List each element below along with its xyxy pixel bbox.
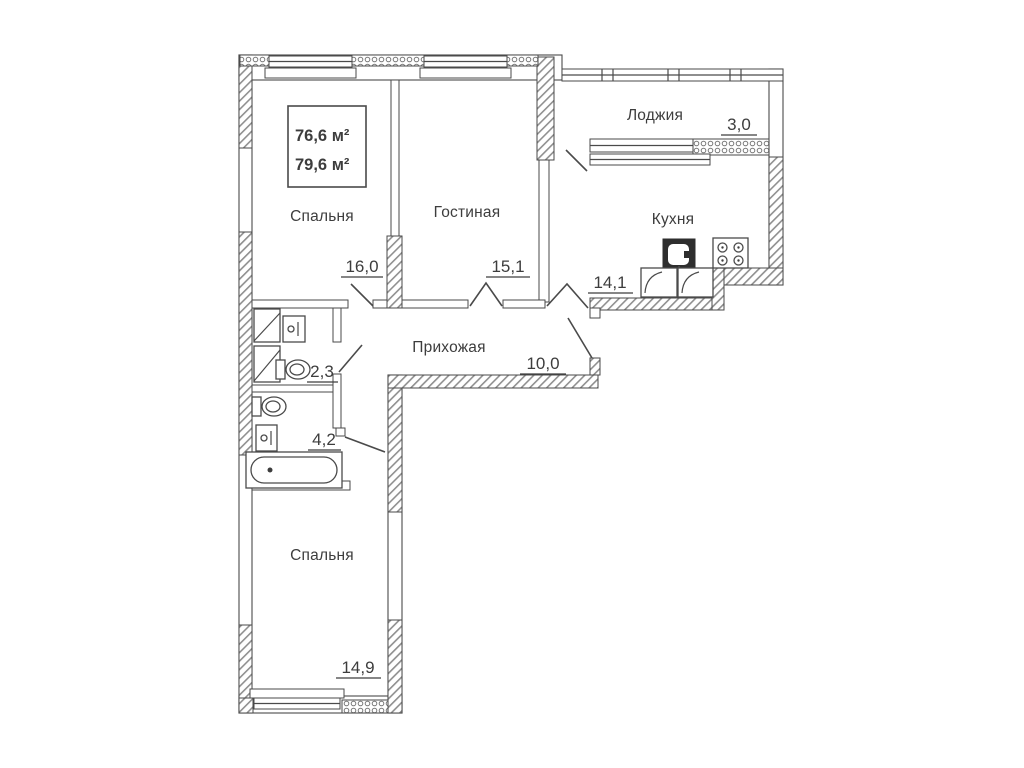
balcony-door-leaf <box>566 150 587 171</box>
floor-plan-canvas: 76,6 м² 79,6 м² Спальня 16,0 Гостиная 15… <box>0 0 1024 768</box>
room-area-kitchen: 14,1 <box>593 273 626 292</box>
wc-wall <box>333 308 341 342</box>
room-label-hallway: Прихожая <box>412 339 485 356</box>
total-area-with-loggia-value: 79,6 м² <box>295 156 350 174</box>
window-bedroom-bottom <box>250 689 388 713</box>
room-area-bedroom-bottom: 14,9 <box>341 658 374 677</box>
bath-door-hinge <box>336 428 345 436</box>
room-labels: Спальня 16,0 Гостиная 15,1 Кухня 14,1 Ло… <box>290 107 757 678</box>
room-area-bathroom: 4,2 <box>312 430 336 449</box>
block-pattern <box>342 700 388 713</box>
bathtub-icon <box>246 452 342 488</box>
wc-fixtures <box>254 309 310 382</box>
wc-door-leaf <box>339 345 362 372</box>
entrance-door-leaf <box>568 318 592 358</box>
room-area-living-room: 15,1 <box>491 257 524 276</box>
kitchen-bottom-wall <box>590 298 712 310</box>
block-pattern <box>240 55 269 66</box>
room-label-living-room: Гостиная <box>434 204 501 221</box>
entrance-wall <box>590 308 600 318</box>
bedroom-top-door-leaf <box>351 284 373 306</box>
hallway-top-wall <box>402 300 468 308</box>
living-room-door-leaf <box>470 283 502 306</box>
room-label-loggia: Лоджия <box>627 107 683 124</box>
room-area-loggia: 3,0 <box>727 115 751 134</box>
kitchen-door-leaf <box>547 284 588 308</box>
bath-door-leaf <box>345 437 385 452</box>
total-area-value: 76,6 м² <box>295 127 350 145</box>
room-area-bedroom-top: 16,0 <box>345 257 378 276</box>
wall-hatch-block <box>239 232 252 455</box>
block-pattern <box>352 55 424 66</box>
area-box: 76,6 м² 79,6 м² <box>288 106 366 187</box>
loggia-kitchen-wall <box>566 139 769 171</box>
wall-hatch-block <box>388 375 402 512</box>
kitchen-fixtures <box>641 238 748 297</box>
wc-bath-divider <box>252 385 333 392</box>
wall-hatch-block <box>239 55 252 148</box>
washbasin-icon <box>256 425 277 451</box>
vent-shaft-icon <box>254 309 280 342</box>
toilet-icon <box>276 360 310 379</box>
loggia-glazing <box>562 69 783 81</box>
block-pattern <box>507 55 538 66</box>
hallway-top-wall <box>373 300 387 308</box>
living-kitchen-wall <box>539 160 549 302</box>
window-living-room <box>420 56 511 78</box>
wall-hatch-block <box>769 157 783 285</box>
block-pattern <box>693 139 769 155</box>
bedroom-living-wall <box>391 80 399 236</box>
hallway-bottom-wall <box>388 375 598 388</box>
room-label-bedroom-bottom: Спальня <box>290 547 354 564</box>
toilet-icon <box>252 397 286 416</box>
room-label-kitchen: Кухня <box>652 211 694 228</box>
hallway-top-wall <box>252 300 348 308</box>
floor-plan-drawing: 76,6 м² 79,6 м² Спальня 16,0 Гостиная 15… <box>0 0 1024 768</box>
pier-hatch-block <box>387 236 402 308</box>
stove-icon <box>713 238 748 268</box>
hallway-top-wall <box>503 300 545 308</box>
kitchen-counter-icon <box>641 268 713 297</box>
window-bedroom-top <box>265 56 356 78</box>
living-loggia-wall <box>537 57 554 160</box>
kitchen-step-wall <box>712 268 724 310</box>
wall-hatch-block <box>388 620 402 713</box>
room-area-wc: 2,3 <box>310 362 334 381</box>
entrance-jamb-block <box>590 358 600 375</box>
room-label-bedroom-top: Спальня <box>290 208 354 225</box>
room-area-hallway: 10,0 <box>526 354 559 373</box>
washbasin-icon <box>283 316 305 342</box>
wall-hatch-block <box>239 698 253 713</box>
